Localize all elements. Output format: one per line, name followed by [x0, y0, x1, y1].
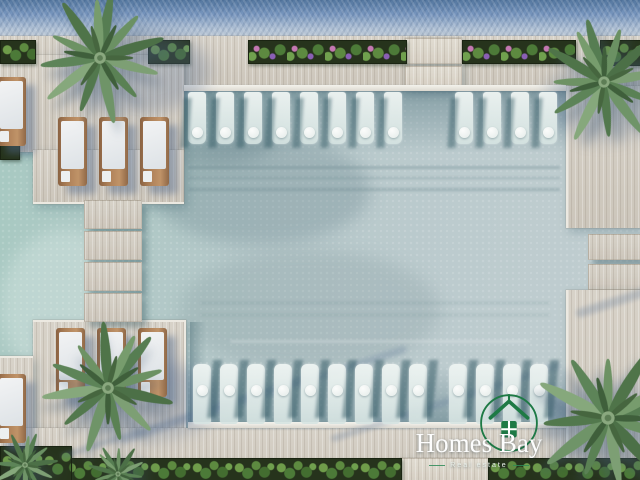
- lounger-pillow: [276, 127, 287, 138]
- inwater-lounger: [247, 364, 265, 424]
- inwater-lounger: [272, 92, 290, 144]
- inwater-lounger: [300, 92, 318, 144]
- inwater-lounger: [244, 92, 262, 144]
- pool-aerial-render: Homes Bay Real estate: [0, 0, 640, 480]
- palm-tree: [19, 0, 181, 139]
- brand-tagline: Real estate: [404, 462, 554, 469]
- inwater-lounger: [455, 92, 473, 144]
- inwater-lounger: [301, 364, 319, 424]
- tagline-dash: [513, 465, 529, 467]
- lounger-pillow: [332, 385, 343, 396]
- lounger-pillow: [304, 127, 315, 138]
- inwater-lounger: [384, 92, 402, 144]
- inwater-lounger: [274, 364, 292, 424]
- lounger-pillow: [192, 127, 203, 138]
- inwater-lounger: [328, 364, 346, 424]
- lounger-pillow: [305, 385, 316, 396]
- tagline-text: Real estate: [450, 462, 507, 469]
- lounger-pillow: [251, 385, 262, 396]
- lounger-pillow: [487, 127, 498, 138]
- lounger-pillow: [360, 127, 371, 138]
- inwater-lounger: [511, 92, 529, 144]
- lounger-pillow: [224, 385, 235, 396]
- lounger-pillow: [459, 127, 470, 138]
- lounger-pillow: [220, 127, 231, 138]
- lounger-pillow: [359, 385, 370, 396]
- inwater-lounger: [328, 92, 346, 144]
- lounger-pillow: [332, 127, 343, 138]
- inwater-lounger: [220, 364, 238, 424]
- lounger-pillow: [248, 127, 259, 138]
- inwater-lounger: [216, 92, 234, 144]
- inwater-lounger: [356, 92, 374, 144]
- tagline-dash: [429, 465, 445, 467]
- inwater-lounger: [355, 364, 373, 424]
- lounger-pillow: [515, 127, 526, 138]
- inwater-lounger: [483, 92, 501, 144]
- inwater-lounger: [382, 364, 400, 424]
- lounger-pillow: [388, 127, 399, 138]
- lounger-pillow: [386, 385, 397, 396]
- inwater-lounger: [188, 92, 206, 144]
- lounger-pillow: [278, 385, 289, 396]
